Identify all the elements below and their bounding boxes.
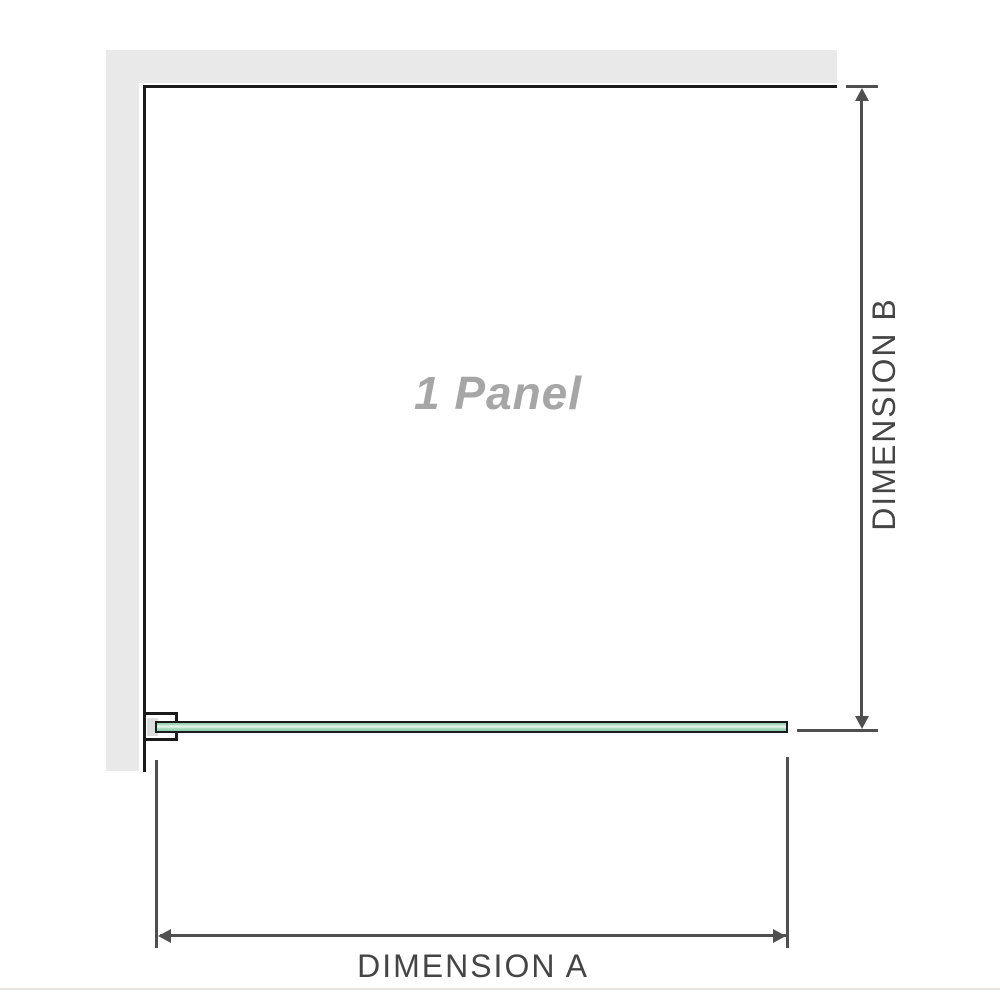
panel-outline-left (143, 85, 146, 772)
page-baseline-divider (0, 988, 1000, 990)
arrow-right-icon (773, 929, 786, 943)
arrow-up-icon (855, 88, 869, 101)
wall-top (106, 50, 837, 83)
dimension-b-line (860, 95, 863, 720)
glass-panel (155, 721, 788, 733)
panel-count-label: 1 Panel (298, 368, 698, 418)
dimension-b-label: DIMENSION B (867, 214, 901, 614)
arrow-down-icon (855, 716, 869, 729)
dimension-a-right-extension (786, 757, 789, 948)
dimension-a-left-extension (155, 760, 158, 948)
arrow-left-icon (158, 929, 171, 943)
dimension-a-line (160, 934, 786, 937)
wall-left (106, 50, 139, 771)
dimension-a-label: DIMENSION A (160, 948, 786, 984)
dimension-b-bottom-tick (797, 729, 878, 732)
shower-panel-diagram: 1 Panel DIMENSION B DIMENSION A (0, 0, 1000, 1000)
panel-outline-top (143, 85, 837, 88)
